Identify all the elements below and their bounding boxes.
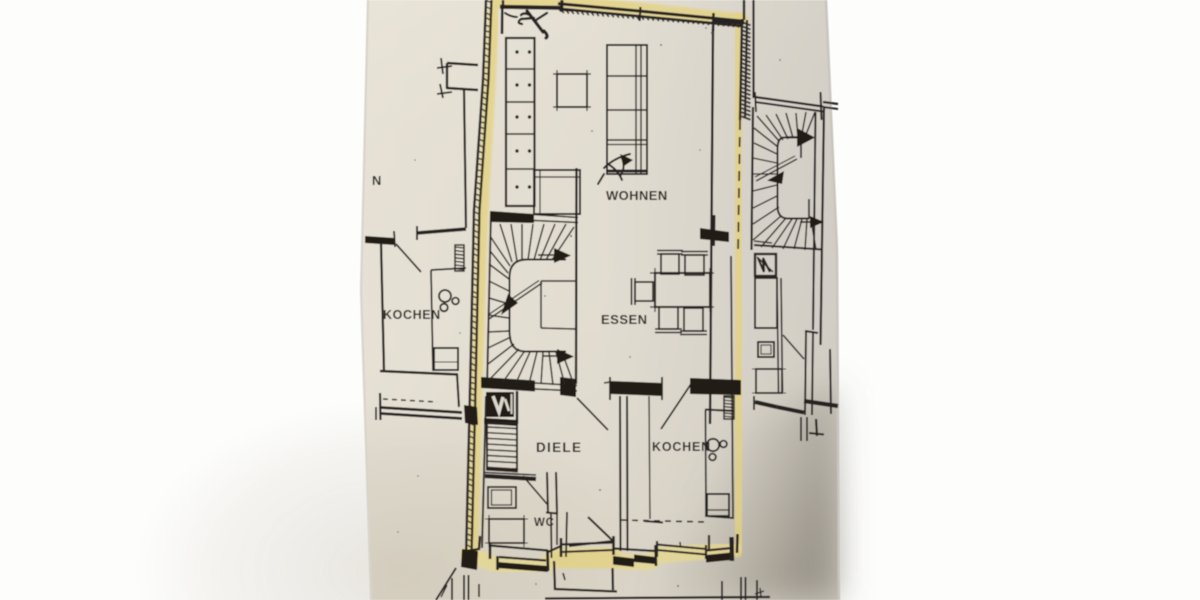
- svg-text:KOCHEN: KOCHEN: [383, 308, 441, 322]
- svg-text:ESSEN: ESSEN: [601, 312, 648, 327]
- svg-text:DIELE: DIELE: [536, 440, 582, 455]
- svg-text:WC: WC: [534, 517, 555, 529]
- svg-text:WOHNEN: WOHNEN: [606, 188, 668, 203]
- svg-text:N: N: [372, 173, 381, 188]
- svg-text:KOCHEN: KOCHEN: [652, 440, 711, 454]
